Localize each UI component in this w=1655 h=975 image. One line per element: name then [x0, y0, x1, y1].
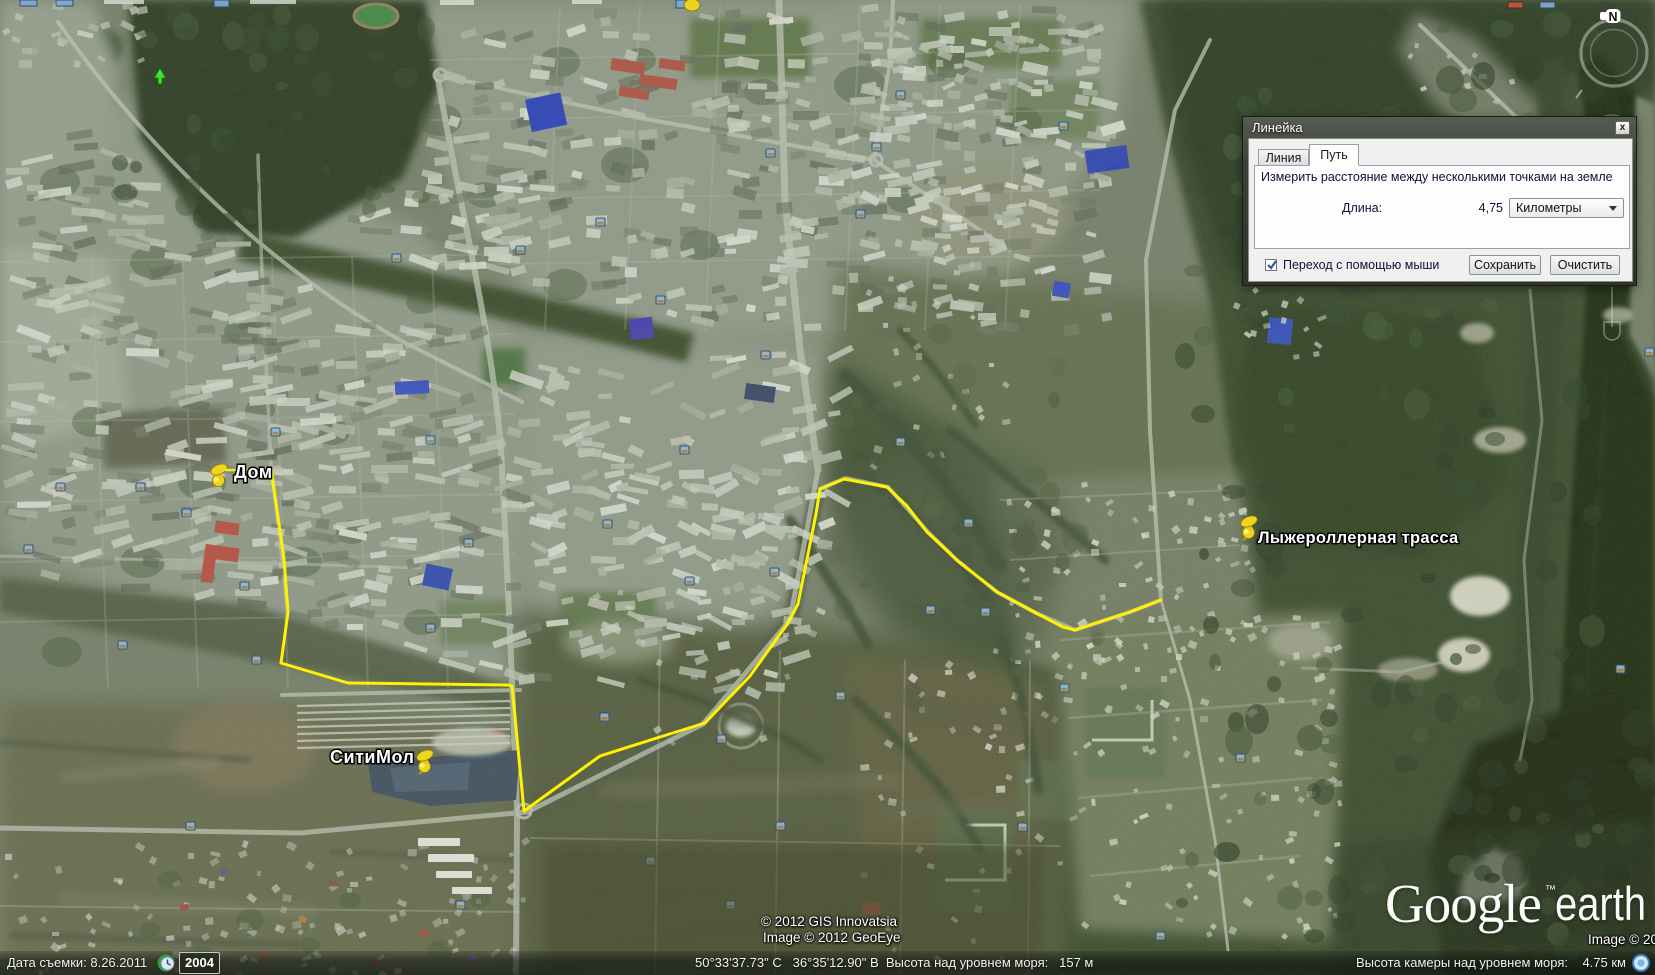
- svg-text:Лыжероллерная трасса: Лыжероллерная трасса: [1258, 529, 1459, 547]
- svg-text:СитиМол: СитиМол: [330, 747, 414, 767]
- svg-text:N: N: [1608, 10, 1617, 24]
- svg-text:Дом: Дом: [234, 462, 273, 482]
